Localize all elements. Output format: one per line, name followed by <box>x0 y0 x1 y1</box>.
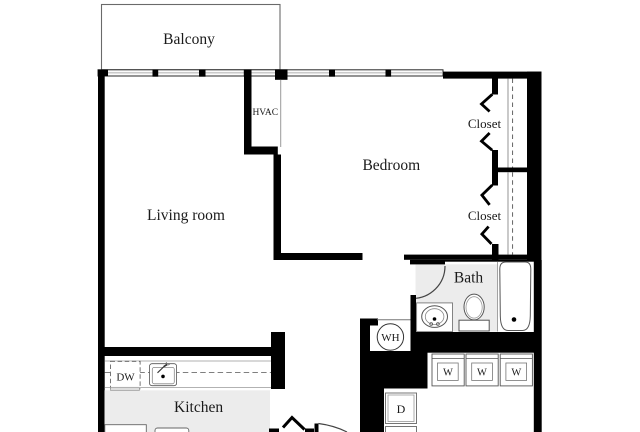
svg-text:W: W <box>443 368 453 379</box>
svg-text:Closet: Closet <box>468 116 502 131</box>
svg-text:W: W <box>477 368 487 379</box>
svg-text:Living room: Living room <box>147 207 225 224</box>
svg-text:HVAC: HVAC <box>252 108 278 118</box>
svg-text:Balcony: Balcony <box>163 31 215 48</box>
svg-text:D: D <box>397 402 406 416</box>
svg-text:Kitchen: Kitchen <box>174 399 223 416</box>
svg-text:Closet: Closet <box>468 208 502 223</box>
svg-text:DW: DW <box>116 372 135 384</box>
svg-text:Bath: Bath <box>454 270 484 287</box>
svg-text:W: W <box>511 368 521 379</box>
svg-text:Bedroom: Bedroom <box>362 157 420 174</box>
svg-text:WH: WH <box>381 332 399 344</box>
